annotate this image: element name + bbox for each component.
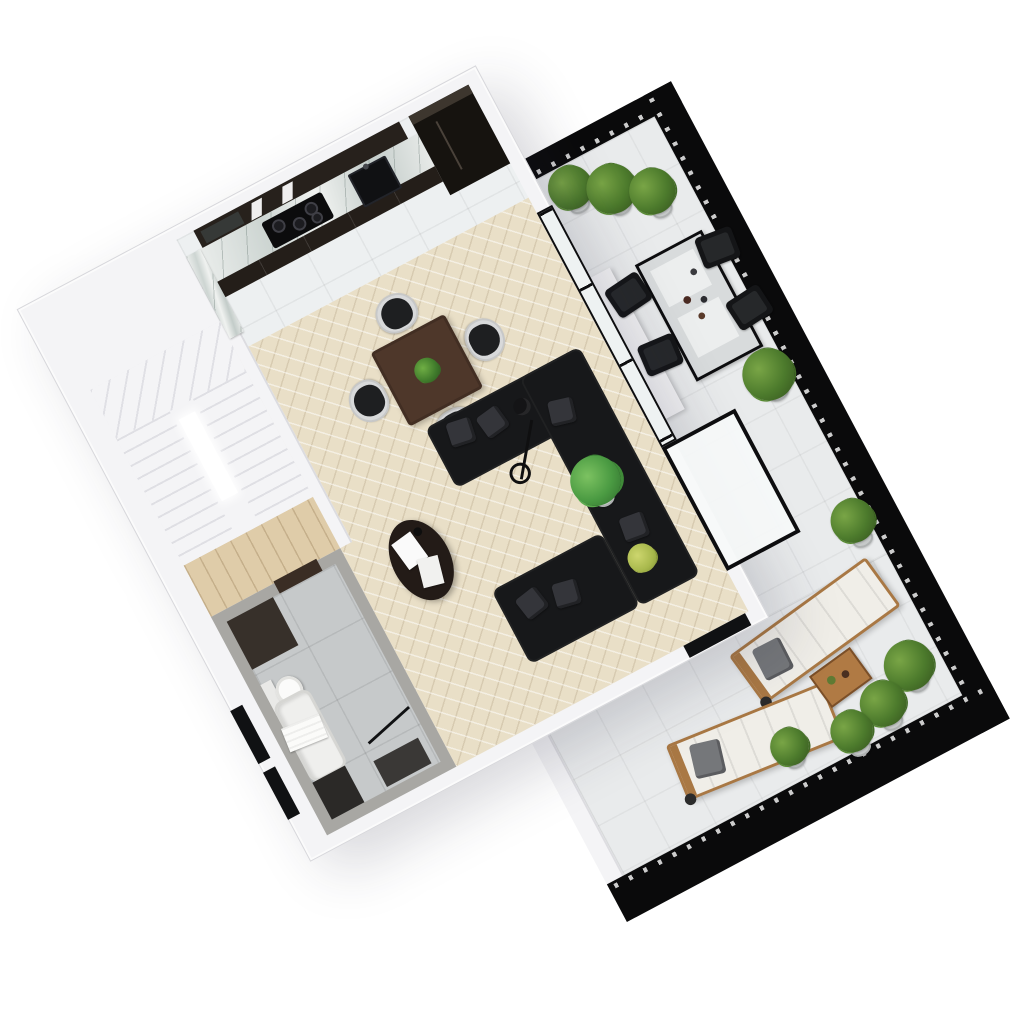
cup <box>682 295 692 305</box>
render-canvas <box>0 0 1024 1024</box>
decor-item <box>825 674 837 686</box>
lounger-pillow <box>689 738 727 779</box>
column-handle <box>435 121 462 170</box>
chair-seat <box>642 338 678 371</box>
magazine <box>417 555 445 588</box>
plant-centerpiece <box>410 353 444 387</box>
decor-item <box>840 669 851 680</box>
burner <box>290 215 308 233</box>
lounger-pillow <box>751 636 795 681</box>
faucet <box>362 163 370 171</box>
burner <box>270 217 288 235</box>
chair-seat <box>700 231 736 263</box>
